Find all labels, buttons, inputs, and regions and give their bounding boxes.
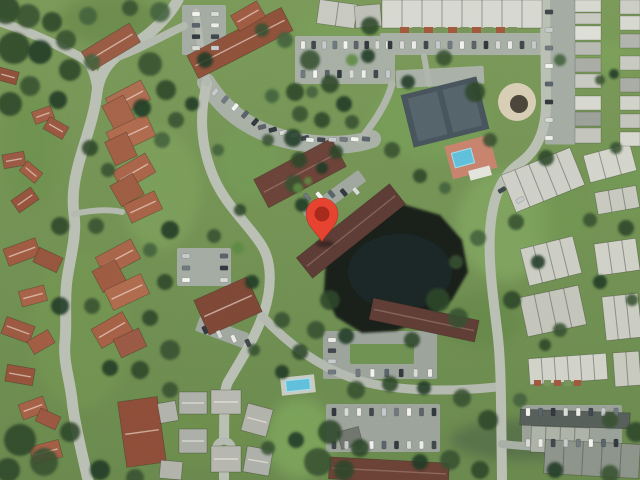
satellite-grain-texture <box>0 0 640 480</box>
pin-inner-circle <box>315 207 330 222</box>
map-viewport <box>0 0 640 480</box>
satellite-map-canvas[interactable] <box>0 0 640 480</box>
pin-shadow <box>316 241 334 248</box>
